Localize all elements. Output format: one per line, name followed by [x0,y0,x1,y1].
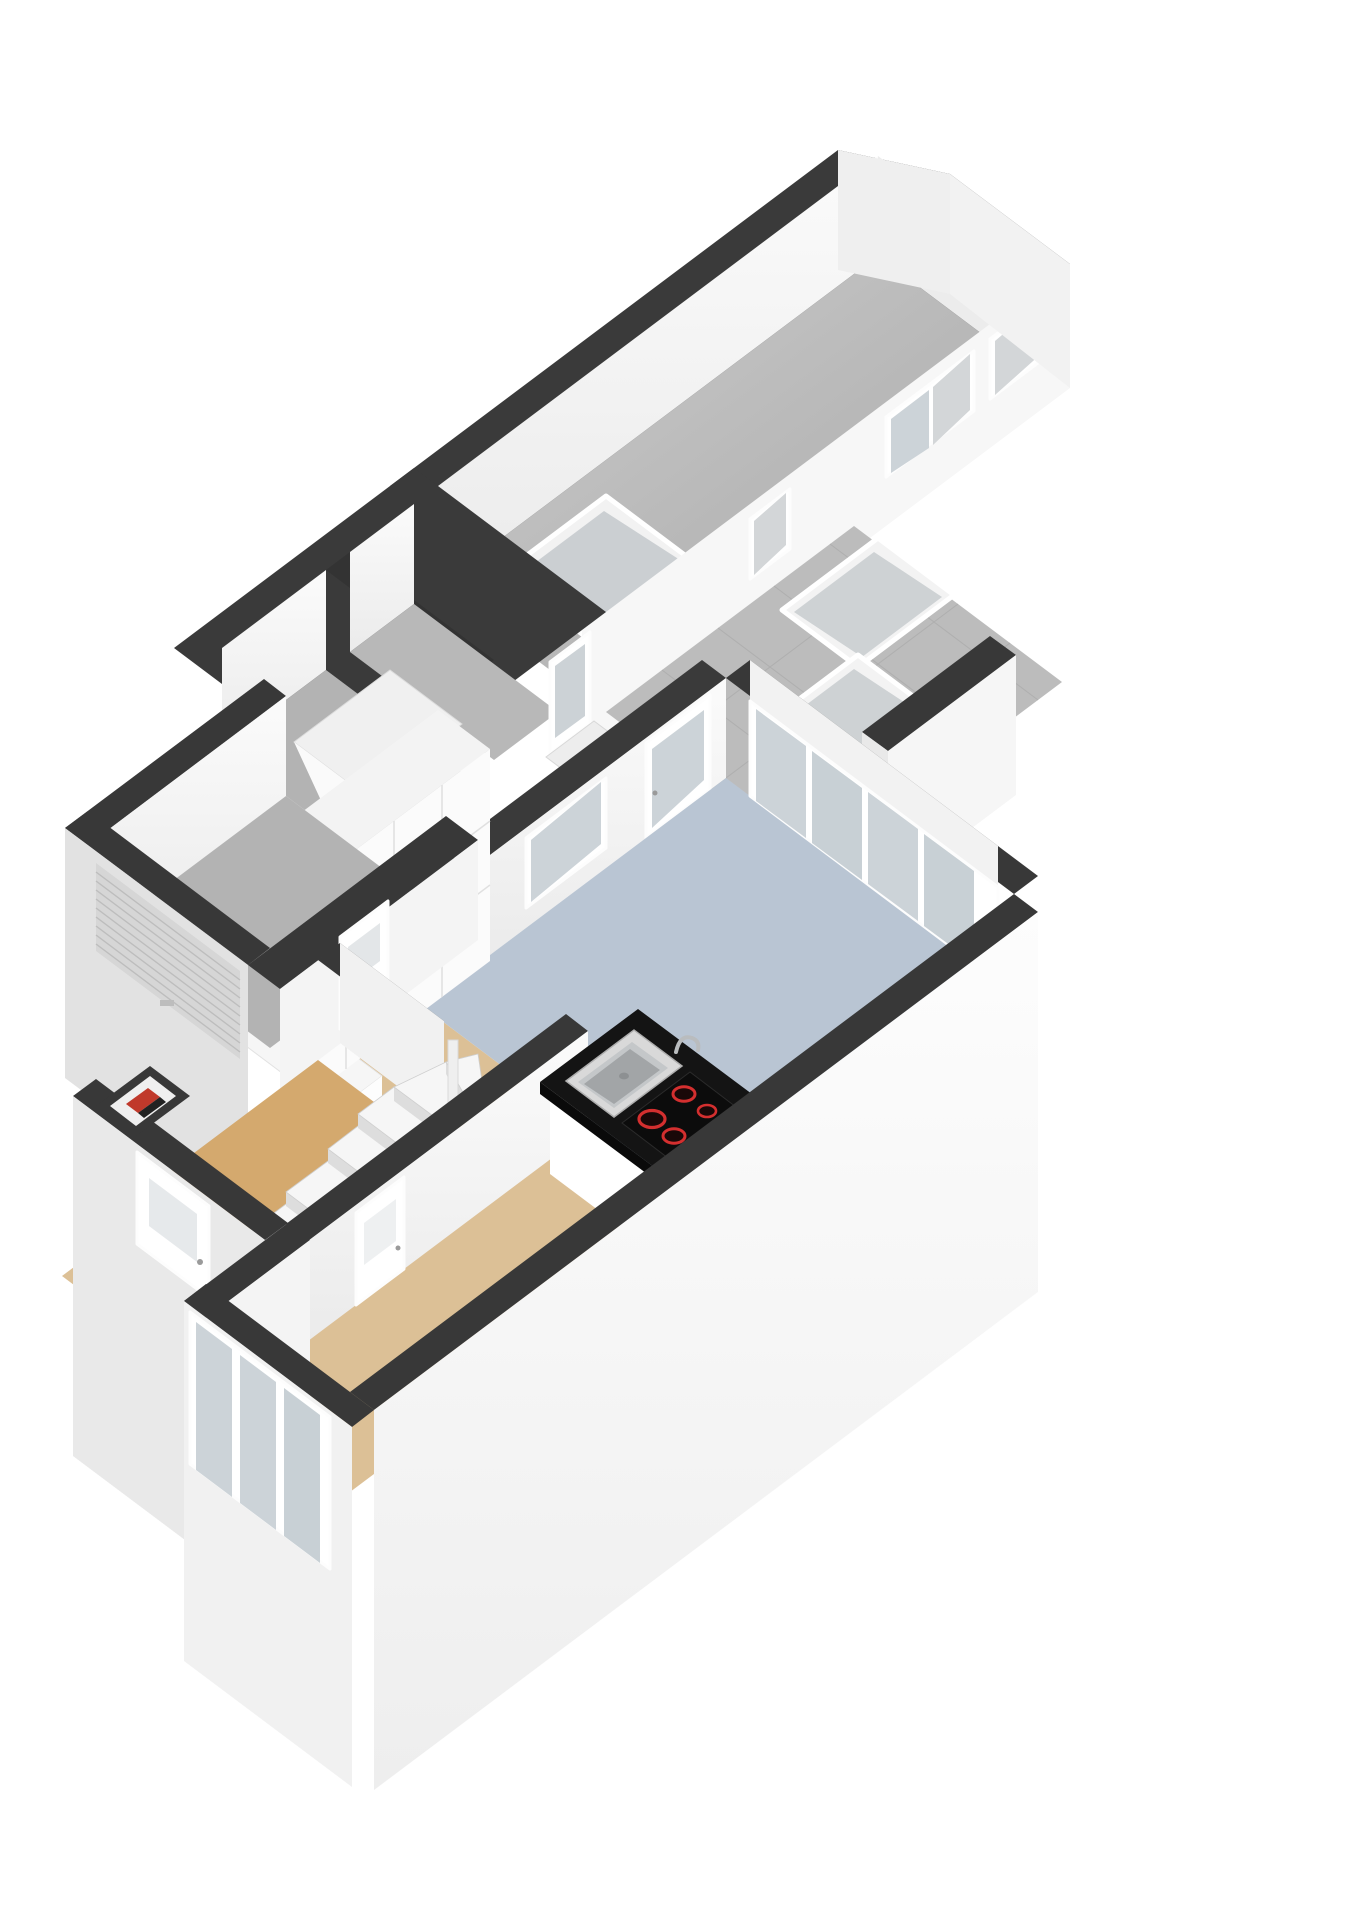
front-door-handle [197,1259,203,1265]
back-door-handle [653,791,658,796]
facade-window-pane-3 [284,1388,320,1563]
hob-burner-1 [639,1111,665,1128]
facade-window-pane-2 [240,1355,276,1530]
annex-chamfer-face [838,150,950,294]
sink-drain [619,1073,629,1080]
hob-burner-3 [663,1129,685,1143]
hob-burner-4 [698,1105,716,1117]
living-door-handle [396,1246,401,1251]
garage-door-handle [160,1000,174,1006]
floorplan-stage [0,0,1358,1920]
facade-window-pane-1 [196,1322,232,1497]
floorplan-3d-render [0,0,1358,1920]
hob-burner-2 [673,1087,695,1101]
